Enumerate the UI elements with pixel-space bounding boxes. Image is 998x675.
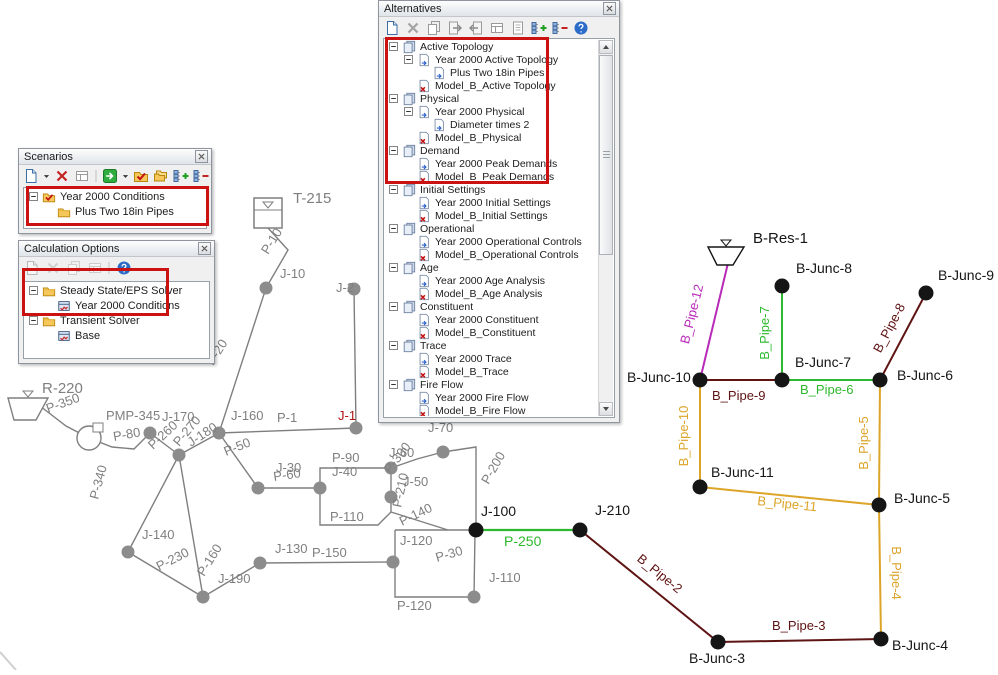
tree-item-label: Year 2000 Operational Controls: [435, 236, 582, 248]
tree-item[interactable]: Model_B_Age Analysis: [385, 287, 599, 300]
tree-item[interactable]: Model_B_Physical: [385, 131, 599, 144]
junction-node[interactable]: [775, 279, 790, 294]
calculation-options-panel: Calculation Options Steady State/EPS Sol…: [18, 240, 215, 364]
tree-item-label: Model_B_Trace: [435, 366, 509, 378]
doc-icon: [417, 235, 432, 249]
tree-item-label: Constituent: [420, 301, 473, 313]
tree-item-label: Year 2000 Trace: [435, 353, 512, 365]
scrollbar-thumb[interactable]: [599, 55, 613, 255]
junction-node[interactable]: [468, 591, 481, 604]
junction-node[interactable]: [873, 373, 888, 388]
network-label: B-Junc-6: [897, 367, 953, 383]
folder-check-icon[interactable]: [133, 167, 149, 184]
group-icon: [402, 183, 417, 197]
tree-item-label: Active Topology: [420, 41, 493, 53]
alternatives-tree: Active TopologyYear 2000 Active Topology…: [385, 40, 599, 416]
junction-node[interactable]: [350, 422, 363, 435]
tree-item-label: Year 2000 Age Analysis: [435, 275, 545, 287]
table-ti-icon[interactable]: [488, 19, 505, 36]
tree-connector: [404, 210, 415, 221]
tree-item-label: Plus Two 18in Pipes: [450, 67, 544, 79]
tree-connector: [404, 405, 415, 416]
network-label: B_Pipe-6: [800, 382, 853, 397]
calc-icon: [57, 329, 72, 343]
expander-minus-icon[interactable]: [389, 223, 400, 234]
tree-item[interactable]: Year 2000 Conditions: [25, 189, 205, 204]
tree-item[interactable]: Operational: [385, 222, 599, 235]
tree-connector: [404, 314, 415, 325]
tree-item-label: Steady State/EPS Solver: [60, 285, 182, 297]
junction-node[interactable]: [693, 480, 708, 495]
tree-item[interactable]: Year 2000 Initial Settings: [385, 196, 599, 209]
delete-x-red-icon[interactable]: [54, 167, 70, 184]
tree-plus-icon[interactable]: [173, 167, 189, 184]
network-label: J-40: [332, 464, 357, 479]
tree-item[interactable]: Model_B_Peak Demands: [385, 170, 599, 183]
network-label: J-1: [338, 408, 356, 423]
network-label: B_Pipe-11: [757, 493, 818, 514]
scenarios-panel: Scenarios Year 2000 ConditionsPlus Two 1…: [18, 148, 212, 234]
tree-connector: [404, 171, 415, 182]
tree-item[interactable]: Model_B_Constituent: [385, 326, 599, 339]
tree-item[interactable]: Year 2000 Age Analysis: [385, 274, 599, 287]
network-label: B-Junc-3: [689, 650, 745, 666]
table-ti-icon[interactable]: [74, 167, 90, 184]
network-label: P-340: [86, 463, 109, 500]
tree-item[interactable]: Year 2000 Conditions: [25, 298, 208, 313]
doc-export-icon[interactable]: [446, 19, 463, 36]
expander-minus-icon[interactable]: [29, 315, 40, 326]
expander-minus-icon[interactable]: [389, 184, 400, 195]
tree-item[interactable]: Year 2000 Operational Controls: [385, 235, 599, 248]
network-label: B-Junc-11: [711, 464, 774, 480]
doc-x-icon: [417, 170, 432, 184]
tree-item-label: Year 2000 Conditions: [75, 300, 180, 312]
sep-icon: [107, 259, 111, 276]
tree-item[interactable]: Age: [385, 261, 599, 274]
tree-item-label: Model_B_Physical: [435, 132, 521, 144]
compute-icon[interactable]: [102, 167, 118, 184]
tree-item[interactable]: Year 2000 Physical: [385, 105, 599, 118]
doc-icon: [417, 313, 432, 327]
network-label: B_Pipe-3: [772, 618, 825, 633]
tree-item-label: Operational: [420, 223, 474, 235]
expander-minus-icon[interactable]: [389, 301, 400, 312]
tree-item-label: Demand: [420, 145, 460, 157]
alternatives-title: Alternatives: [384, 3, 441, 15]
tree-minus-icon[interactable]: [193, 167, 209, 184]
tree-item-label: Year 2000 Conditions: [60, 191, 165, 203]
tree-item-label: Year 2000 Peak Demands: [435, 158, 557, 170]
delete-x-grey-icon[interactable]: [44, 259, 61, 276]
new-doc-icon[interactable]: [23, 167, 39, 184]
junction-node[interactable]: [573, 523, 588, 538]
folder-check-icon: [42, 190, 57, 204]
group-icon: [402, 92, 417, 106]
tree-item-label: Model_B_Peak Demands: [435, 171, 554, 183]
network-label: P-110: [330, 509, 364, 524]
junction-node[interactable]: [122, 546, 135, 559]
tree-item[interactable]: Plus Two 18in Pipes: [385, 66, 599, 79]
pipe[interactable]: [260, 562, 393, 563]
tree-connector: [419, 119, 430, 130]
tree-item-label: Model_B_Initial Settings: [435, 210, 548, 222]
tree-connector: [404, 197, 415, 208]
folder-icon: [42, 314, 57, 328]
alternatives-toolbar: [379, 17, 619, 38]
tree-minus-icon[interactable]: [551, 19, 568, 36]
group-icon: [402, 144, 417, 158]
expander-minus-icon[interactable]: [389, 93, 400, 104]
tree-connector: [44, 300, 55, 311]
tree-item-label: Fire Flow: [420, 379, 463, 391]
tree-item-label: Year 2000 Physical: [435, 106, 525, 118]
junction-node[interactable]: [314, 482, 327, 495]
network-label: P-210: [389, 472, 411, 509]
network-label: P-200: [478, 449, 508, 487]
doc-x-icon: [417, 131, 432, 145]
delete-x-grey-icon[interactable]: [404, 19, 421, 36]
network-label: T-215: [293, 190, 331, 207]
network-label: B_Pipe-10: [676, 406, 691, 467]
tree-item-label: Plus Two 18in Pipes: [75, 206, 174, 218]
help-icon[interactable]: [115, 259, 132, 276]
pipe[interactable]: [718, 639, 881, 642]
tree-item-label: Base: [75, 330, 100, 342]
calculation-options-tree: Steady State/EPS SolverYear 2000 Conditi…: [25, 283, 208, 357]
doc-icon: [432, 118, 447, 132]
network-label: P-120: [397, 598, 432, 613]
expander-minus-icon[interactable]: [404, 106, 415, 117]
alternatives-treebox: Active TopologyYear 2000 Active Topology…: [383, 38, 615, 418]
tree-item[interactable]: Transient Solver: [25, 313, 208, 328]
pipe[interactable]: [179, 455, 203, 597]
folder-icon: [42, 284, 57, 298]
pipe[interactable]: [443, 447, 476, 530]
pipe[interactable]: [879, 380, 880, 505]
network-label: P-1: [277, 410, 297, 425]
expander-minus-icon[interactable]: [389, 262, 400, 273]
calculation-options-toolbar: [19, 257, 214, 278]
scroll-up-icon[interactable]: [599, 40, 613, 54]
tree-item[interactable]: Model_B_Fire Flow: [385, 404, 599, 416]
tree-item[interactable]: Model_B_Trace: [385, 365, 599, 378]
doc-import-icon[interactable]: [467, 19, 484, 36]
calc-icon: [57, 299, 72, 313]
network-label: J-140: [142, 527, 175, 542]
junction-node[interactable]: [693, 373, 708, 388]
tree-connector: [404, 288, 415, 299]
doc-icon: [417, 352, 432, 366]
network-label: B-Junc-4: [892, 637, 948, 653]
tree-connector: [44, 330, 55, 341]
network-label: B_Pipe-5: [856, 416, 871, 469]
doc-x-icon: [417, 287, 432, 301]
junction-node[interactable]: [437, 446, 450, 459]
group-icon: [402, 40, 417, 54]
close-icon[interactable]: [195, 150, 208, 163]
doc-icon: [417, 391, 432, 405]
tree-connector: [404, 353, 415, 364]
junction-node[interactable]: [469, 523, 484, 538]
tree-item[interactable]: Steady State/EPS Solver: [25, 283, 208, 298]
tree-connector: [404, 366, 415, 377]
tree-item-label: Year 2000 Constituent: [435, 314, 539, 326]
tree-connector: [404, 249, 415, 260]
junction-node[interactable]: [919, 286, 934, 301]
tree-item-label: Year 2000 Active Topology: [435, 54, 558, 66]
tree-item[interactable]: Demand: [385, 144, 599, 157]
network-label: P-60: [272, 465, 301, 484]
doc-icon: [417, 105, 432, 119]
network-label: P-30: [434, 543, 465, 565]
copy-icon[interactable]: [425, 19, 442, 36]
junction-node[interactable]: [197, 591, 210, 604]
doc-icon: [417, 274, 432, 288]
tree-item-label: Model_B_Fire Flow: [435, 405, 525, 417]
tree-connector: [404, 275, 415, 286]
tree-item[interactable]: Plus Two 18in Pipes: [25, 204, 205, 219]
network-label: P-50: [222, 435, 253, 459]
group-icon: [402, 339, 417, 353]
network-label: J-120: [400, 533, 433, 548]
junction-node[interactable]: [775, 373, 790, 388]
network-label: P-250: [504, 533, 542, 549]
tree-item[interactable]: Model_B_Operational Controls: [385, 248, 599, 261]
help-icon[interactable]: [572, 19, 589, 36]
expander-minus-icon[interactable]: [404, 54, 415, 65]
scenarios-title: Scenarios: [24, 151, 73, 163]
caret-icon[interactable]: [122, 167, 129, 184]
group-icon: [402, 300, 417, 314]
network-label: J-160: [231, 408, 264, 423]
folders-icon[interactable]: [153, 167, 169, 184]
close-icon[interactable]: [603, 2, 616, 15]
tree-item[interactable]: Model_B_Initial Settings: [385, 209, 599, 222]
tree-item-label: Transient Solver: [60, 315, 140, 327]
expander-minus-icon[interactable]: [389, 340, 400, 351]
doc-x-icon: [417, 209, 432, 223]
caret-icon[interactable]: [43, 167, 50, 184]
tree-item[interactable]: Year 2000 Fire Flow: [385, 391, 599, 404]
expander-minus-icon[interactable]: [389, 145, 400, 156]
doc-x-icon: [417, 404, 432, 417]
doc-x-icon: [417, 79, 432, 93]
tree-item[interactable]: Base: [25, 328, 208, 343]
doc-x-icon: [417, 248, 432, 262]
tree-item-label: Physical: [420, 93, 459, 105]
network-label: B_Pipe-9: [712, 388, 765, 403]
pump-casing: [93, 423, 103, 432]
network-label: B_Pipe-7: [757, 306, 772, 359]
tree-item-label: Year 2000 Initial Settings: [435, 197, 551, 209]
scenarios-tree: Year 2000 ConditionsPlus Two 18in Pipes: [25, 189, 205, 227]
network-label: B-Res-1: [753, 230, 808, 247]
tree-item-label: Age: [420, 262, 439, 274]
tree-item[interactable]: Year 2000 Constituent: [385, 313, 599, 326]
network-label: J-190: [218, 571, 251, 586]
tree-item[interactable]: Year 2000 Peak Demands: [385, 157, 599, 170]
network-label: J-2: [336, 280, 354, 295]
tree-item[interactable]: Active Topology: [385, 40, 599, 53]
scenarios-toolbar: [19, 165, 211, 186]
junction-node[interactable]: [173, 449, 186, 462]
tree-item[interactable]: Model_B_Active Topology: [385, 79, 599, 92]
group-icon: [402, 222, 417, 236]
network-label: J-110: [489, 570, 521, 585]
tree-item-label: Model_B_Operational Controls: [435, 249, 579, 261]
network-label: P-230: [154, 545, 192, 574]
close-icon[interactable]: [198, 242, 211, 255]
calculation-options-treebox: Steady State/EPS SolverYear 2000 Conditi…: [23, 281, 210, 359]
scroll-down-icon[interactable]: [599, 402, 613, 416]
tree-item-label: Year 2000 Fire Flow: [435, 392, 529, 404]
pipe[interactable]: [700, 263, 728, 380]
folder-icon: [57, 205, 72, 219]
junction-node[interactable]: [711, 635, 726, 650]
doc-x-icon: [417, 365, 432, 379]
tree-connector: [404, 132, 415, 143]
network-label: B-Junc-5: [894, 490, 950, 506]
network-label: B-Junc-10: [627, 369, 691, 385]
scenarios-treebox: Year 2000 ConditionsPlus Two 18in Pipes: [23, 187, 207, 229]
tree-connector: [419, 67, 430, 78]
tree-item-label: Model_B_Constituent: [435, 327, 535, 339]
tree-item-label: Diameter times 2: [450, 119, 529, 131]
corner-artifact: [0, 652, 16, 670]
tree-item[interactable]: Initial Settings: [385, 183, 599, 196]
report-icon[interactable]: [509, 19, 526, 36]
junction-node[interactable]: [260, 282, 273, 295]
tree-item[interactable]: Physical: [385, 92, 599, 105]
water-surface-icon: [721, 240, 731, 246]
network-label: J-130: [275, 541, 308, 556]
network-label: B-Junc-8: [796, 260, 852, 276]
table-ti-icon[interactable]: [86, 259, 103, 276]
network-label: J-10: [280, 266, 305, 281]
new-doc-icon[interactable]: [383, 19, 400, 36]
tree-item[interactable]: Year 2000 Active Topology: [385, 53, 599, 66]
junction-node[interactable]: [252, 482, 265, 495]
network-label: B-Junc-7: [795, 354, 851, 370]
junction-node[interactable]: [872, 498, 887, 513]
doc-icon: [417, 53, 432, 67]
expander-minus-icon[interactable]: [29, 191, 40, 202]
tree-connector: [404, 80, 415, 91]
tree-item[interactable]: Fire Flow: [385, 378, 599, 391]
network-label: P-90: [332, 450, 359, 465]
tree-connector: [404, 158, 415, 169]
tree-plus-icon[interactable]: [530, 19, 547, 36]
doc-icon: [417, 157, 432, 171]
network-label: P-80: [112, 424, 142, 444]
network-label: J-210: [595, 502, 630, 518]
doc-icon: [417, 196, 432, 210]
alternatives-titlebar[interactable]: Alternatives: [379, 1, 619, 17]
tree-item-label: Model_B_Age Analysis: [435, 288, 542, 300]
calculation-options-titlebar[interactable]: Calculation Options: [19, 241, 214, 257]
reservoir-symbol[interactable]: [708, 247, 744, 265]
pipe[interactable]: [219, 428, 356, 433]
tree-connector: [404, 392, 415, 403]
tree-item[interactable]: Year 2000 Trace: [385, 352, 599, 365]
network-label: B_Pipe-8: [870, 301, 908, 355]
network-label: P-150: [312, 545, 347, 560]
scrollbar[interactable]: [598, 40, 613, 416]
tree-connector: [44, 206, 55, 217]
expander-minus-icon[interactable]: [389, 41, 400, 52]
pipe[interactable]: [580, 530, 718, 642]
junction-node[interactable]: [874, 632, 889, 647]
network-label: B_Pipe-2: [634, 551, 685, 596]
network-label: J-100: [481, 503, 516, 519]
network-label: P-10: [258, 225, 285, 256]
tree-item-label: Model_B_Active Topology: [435, 80, 556, 92]
tree-item-label: Initial Settings: [420, 184, 485, 196]
group-icon: [402, 378, 417, 392]
expander-minus-icon[interactable]: [389, 379, 400, 390]
scenarios-titlebar[interactable]: Scenarios: [19, 149, 211, 165]
new-doc-icon[interactable]: [23, 259, 40, 276]
group-icon: [402, 261, 417, 275]
tree-connector: [404, 327, 415, 338]
tree-connector: [404, 236, 415, 247]
tree-item[interactable]: Constituent: [385, 300, 599, 313]
network-label: B_Pipe-4: [889, 546, 904, 599]
network-label: B-Junc-9: [938, 267, 994, 283]
alternatives-panel: Alternatives Active TopologyYear 2000 Ac…: [378, 0, 620, 423]
water-surface-icon: [23, 391, 33, 397]
expander-minus-icon[interactable]: [29, 285, 40, 296]
pipe[interactable]: [879, 505, 881, 639]
sep-icon: [94, 167, 98, 184]
tree-item-label: Trace: [420, 340, 446, 352]
network-label: PMP-345: [106, 408, 160, 423]
junction-node[interactable]: [387, 556, 400, 569]
tree-item[interactable]: Diameter times 2: [385, 118, 599, 131]
doc-icon: [432, 66, 447, 80]
reservoir-symbol[interactable]: [8, 398, 48, 420]
tree-item[interactable]: Trace: [385, 339, 599, 352]
junction-node[interactable]: [254, 557, 267, 570]
doc-x-icon: [417, 326, 432, 340]
network-label: B_Pipe-12: [677, 283, 706, 346]
calculation-options-title: Calculation Options: [24, 243, 119, 255]
copy-icon[interactable]: [65, 259, 82, 276]
